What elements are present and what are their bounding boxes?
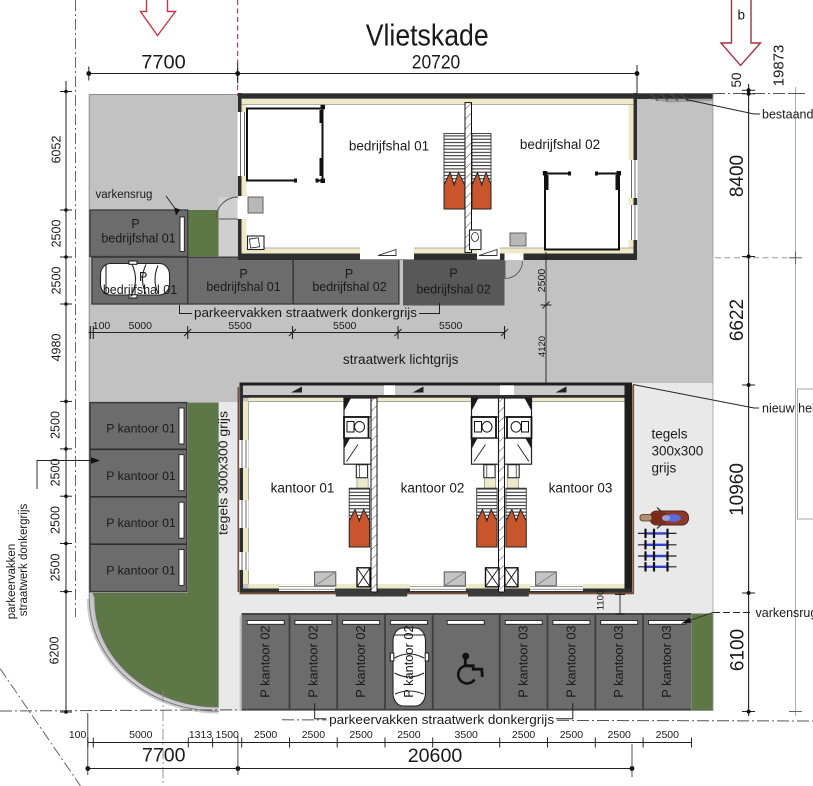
svg-text:bedrijfshal 02: bedrijfshal 02 [416,283,490,297]
svg-text:bedrijfshal 02: bedrijfshal 02 [312,280,386,294]
svg-text:2500: 2500 [49,411,63,439]
svg-text:2500: 2500 [49,554,63,582]
svg-text:P kantoor 02: P kantoor 02 [401,625,416,697]
svg-text:P kantoor 02: P kantoor 02 [305,625,320,697]
svg-text:nieuw hek: nieuw hek [762,402,813,416]
svg-text:varkensrug: varkensrug [96,189,153,201]
svg-text:20600: 20600 [408,745,463,767]
svg-text:7700: 7700 [142,745,186,767]
svg-text:2500: 2500 [50,220,64,248]
svg-text:P kantoor 02: P kantoor 02 [353,625,368,697]
svg-text:P kantoor 01: P kantoor 01 [106,564,176,578]
svg-text:kantoor 03: kantoor 03 [549,481,613,496]
svg-text:kantoor 02: kantoor 02 [401,481,465,496]
svg-text:P kantoor 03: P kantoor 03 [563,625,578,697]
svg-text:P kantoor 02: P kantoor 02 [258,625,273,697]
svg-text:1500: 1500 [216,729,240,741]
svg-text:6200: 6200 [48,637,62,665]
svg-text:2500: 2500 [49,506,63,534]
svg-text:straatwerk lichtgrijs: straatwerk lichtgrijs [343,352,459,367]
svg-text:b: b [737,8,745,23]
svg-text:5500: 5500 [333,320,357,332]
svg-text:P kantoor 03: P kantoor 03 [516,625,531,697]
svg-text:2500: 2500 [397,729,421,741]
svg-text:300x300: 300x300 [652,444,704,459]
svg-text:4120: 4120 [537,336,548,357]
svg-text:bestaand he: bestaand he [762,108,813,122]
svg-text:bedrijfshal 01: bedrijfshal 01 [349,139,429,154]
svg-text:8400: 8400 [727,155,748,197]
svg-text:7700: 7700 [141,52,186,74]
svg-text:parkeervakken straatwerk donke: parkeervakken straatwerk donkergrijs [329,713,554,727]
svg-text:6622: 6622 [727,299,748,341]
svg-text:2500: 2500 [512,729,536,741]
svg-text:kantoor 01: kantoor 01 [271,481,335,496]
svg-text:6052: 6052 [50,136,64,164]
svg-text:bedrijfshal 01: bedrijfshal 01 [101,231,175,245]
svg-text:P kantoor 01: P kantoor 01 [106,469,176,483]
svg-text:100: 100 [93,320,111,332]
svg-text:2500: 2500 [536,269,548,293]
svg-text:2500: 2500 [560,729,584,741]
svg-text:tegels 300x300 grijs: tegels 300x300 grijs [217,411,231,535]
svg-text:3500: 3500 [455,729,479,741]
svg-text:P: P [239,267,247,281]
svg-text:P: P [139,270,147,284]
svg-text:P kantoor 01: P kantoor 01 [106,516,176,530]
svg-text:bedrijfshal 01: bedrijfshal 01 [206,280,280,294]
svg-text:2500: 2500 [49,459,63,487]
svg-text:5500: 5500 [228,320,252,332]
svg-text:P kantoor 01: P kantoor 01 [106,422,176,436]
svg-text:5000: 5000 [129,729,153,741]
svg-text:2500: 2500 [349,729,373,741]
svg-text:1313: 1313 [189,729,213,741]
svg-text:Vlietskade: Vlietskade [366,17,489,52]
svg-text:2500: 2500 [254,729,278,741]
svg-text:bedrijfshal 01: bedrijfshal 01 [103,283,177,297]
svg-text:2500: 2500 [656,729,680,741]
svg-text:50: 50 [729,72,744,87]
svg-text:straatwerk donkergrijs: straatwerk donkergrijs [18,504,30,617]
svg-text:10960: 10960 [727,463,748,516]
svg-text:varkensrug: varkensrug [756,606,813,620]
svg-text:1100: 1100 [596,590,607,610]
svg-text:P: P [345,267,353,281]
svg-text:P kantoor 03: P kantoor 03 [611,625,626,697]
svg-text:6100: 6100 [728,629,749,671]
svg-text:100: 100 [69,729,87,741]
svg-text:4980: 4980 [50,334,64,362]
svg-text:parkeervakken: parkeervakken [6,544,18,619]
svg-text:2500: 2500 [50,267,64,295]
svg-text:P kantoor 03: P kantoor 03 [659,625,674,697]
svg-text:5500: 5500 [439,320,463,332]
svg-text:P: P [449,267,457,281]
svg-text:grijs: grijs [652,461,677,476]
svg-text:2500: 2500 [302,729,326,741]
svg-text:5000: 5000 [129,320,153,332]
svg-text:20720: 20720 [412,52,461,74]
svg-text:tegels: tegels [652,427,688,442]
svg-text:19873: 19873 [771,45,788,87]
svg-text:2500: 2500 [608,729,632,741]
svg-text:P: P [131,217,139,231]
svg-text:bedrijfshal 02: bedrijfshal 02 [520,137,600,152]
svg-text:parkeervakken straatwerk donke: parkeervakken straatwerk donkergrijs [194,306,417,320]
